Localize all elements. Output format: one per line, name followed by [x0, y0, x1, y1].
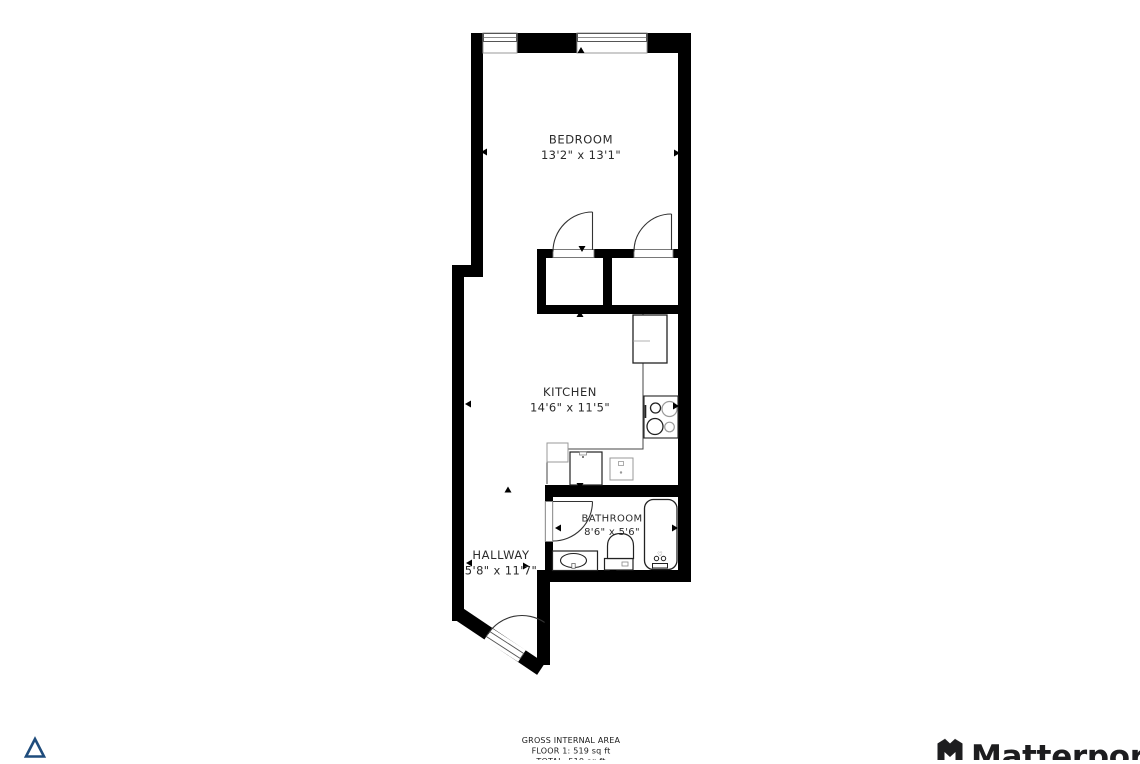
closet-door-right [634, 214, 673, 258]
toilet [605, 534, 634, 571]
stove [644, 396, 678, 438]
wall-closet-bottom [537, 305, 678, 314]
floor-plan-svg: ♡ BEDROOM 13'2" x 13'1" KITCHEN 14'6" x … [0, 0, 1140, 760]
closet-door-left [553, 212, 594, 258]
hallway-dims: 5'8" x 11'7" [465, 564, 537, 578]
marker-bathroom-left [555, 525, 561, 532]
window-bedroom-right [577, 33, 647, 53]
kitchen-fixtures [547, 314, 678, 485]
kitchen-dims: 14'6" x 11'5" [530, 401, 610, 415]
refrigerator [633, 315, 667, 363]
marker-kitchen-left [465, 401, 471, 408]
wall-bedroom-left [471, 33, 483, 277]
gross-area-label: GROSS INTERNAL AREA [522, 736, 621, 745]
area-summary: GROSS INTERNAL AREA FLOOR 1: 519 sq ft T… [522, 736, 621, 760]
wall-closet-left [537, 249, 546, 314]
floor1-area: FLOOR 1: 519 sq ft [532, 747, 611, 756]
bathtub: ♡ [645, 500, 678, 570]
matterport-logo-mark-icon [938, 739, 963, 761]
dishwasher [610, 458, 633, 480]
counter-cabinet [547, 443, 568, 462]
bedroom-dims: 13'2" x 13'1" [541, 148, 621, 162]
wall-right-outer [678, 33, 691, 582]
bathroom-dims: 8'6" x 5'6" [584, 527, 640, 538]
bedroom-label: BEDROOM [549, 133, 613, 147]
hallway-label: HALLWAY [472, 548, 530, 562]
vanity-sink [553, 551, 598, 571]
entry-door [486, 616, 544, 659]
svg-text:♡: ♡ [657, 551, 662, 558]
floor-plan-canvas: ♡ BEDROOM 13'2" x 13'1" KITCHEN 14'6" x … [0, 0, 1140, 760]
wall-left-lower [452, 265, 464, 621]
wall-closet-mid [603, 249, 612, 314]
kitchen-sink [570, 452, 602, 485]
window-bedroom-left [483, 33, 517, 53]
north-indicator-icon [26, 739, 44, 757]
matterport-logo: Matterport [938, 739, 1140, 761]
bathroom-label: BATHROOM [581, 514, 642, 525]
kitchen-label: KITCHEN [543, 385, 597, 399]
marker-hallway-top [505, 487, 512, 493]
wall-hallway-right-lower [537, 570, 550, 665]
matterport-logo-text: Matterport [971, 739, 1140, 760]
